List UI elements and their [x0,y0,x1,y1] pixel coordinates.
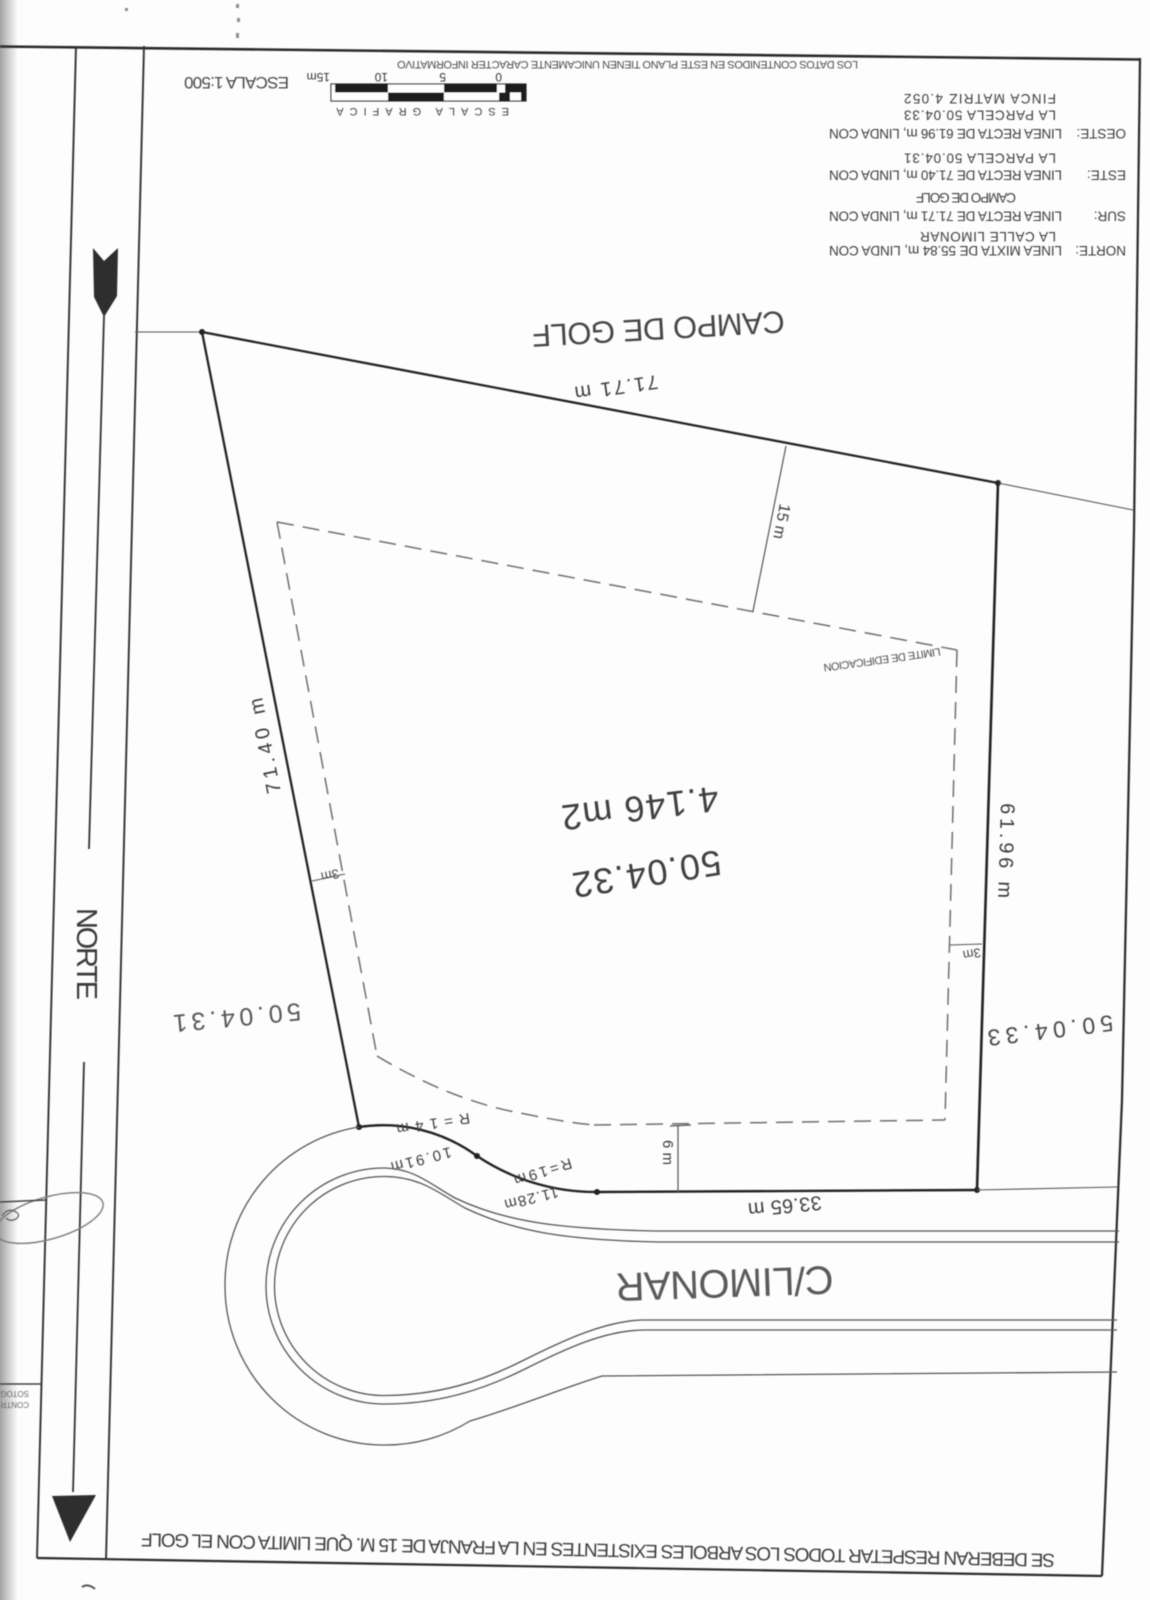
svg-text:LA CALLE LIMONAR: LA CALLE LIMONAR [920,229,1056,244]
svg-text:NORTE:: NORTE: [1075,243,1126,258]
svg-text:ESTE:: ESTE: [1087,168,1126,183]
svg-text:LINEA MIXTA DE 55.84 m, LINDA: LINEA MIXTA DE 55.84 m, LINDA CON [829,243,1062,258]
svg-text:C/LIMONAR: C/LIMONAR [615,1257,834,1309]
svg-text:ESCALA 1:500: ESCALA 1:500 [184,73,289,92]
svg-text:LINEA RECTA DE 61.96 m, LINDA: LINEA RECTA DE 61.96 m, LINDA CON [829,126,1062,141]
svg-text:CONTR: CONTR [0,1400,29,1409]
svg-text:10: 10 [374,70,388,84]
svg-text:SOTOG: SOTOG [0,1389,29,1398]
svg-text:6 m: 6 m [659,1140,676,1165]
svg-text:CAMPO DE GOLF: CAMPO DE GOLF [916,190,1016,205]
svg-text:NORTE: NORTE [70,908,102,1000]
svg-text:LINEA RECTA DE 71.71 m, LINDA: LINEA RECTA DE 71.71 m, LINDA CON [829,209,1062,224]
svg-text:LA PARCELA 50.04.31: LA PARCELA 50.04.31 [904,151,1056,166]
svg-text:3m: 3m [962,945,982,963]
svg-text:SUR:: SUR: [1094,209,1126,224]
svg-text:LOS DATOS CONTENIDOS EN ESTE P: LOS DATOS CONTENIDOS EN ESTE PLANO TIENE… [397,58,858,70]
svg-text:5: 5 [439,70,446,84]
svg-text:OESTE:: OESTE: [1076,126,1126,141]
svg-text:ESCALA GRAFICA: ESCALA GRAFICA [330,105,509,117]
svg-text:LA PARCELA 50.04.33: LA PARCELA 50.04.33 [904,108,1056,123]
svg-text:LINEA RECTA DE 71.40 m, LINDA: LINEA RECTA DE 71.40 m, LINDA CON [829,168,1062,183]
svg-text:0: 0 [495,70,502,84]
svg-text:FINCA MATRIZ 4.052: FINCA MATRIZ 4.052 [904,91,1056,106]
svg-text:15m: 15m [307,70,330,84]
